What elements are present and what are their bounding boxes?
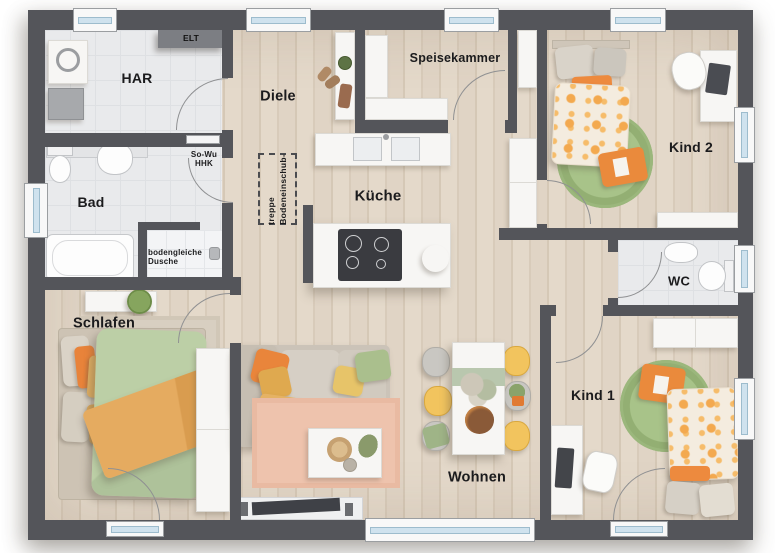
attic-ladder-box: Bodeneinschub- treppe [258,153,297,225]
floor-plan: HAR Diele Speisekammer Kind 2 Bad Küche … [0,0,775,553]
wall-diele-kueche [355,30,365,133]
hall-wardrobe [509,138,537,228]
window-kind2-top [610,8,666,32]
terrace-door-schlafen [106,521,164,537]
sofa-pillow-green [354,349,392,383]
door-glass [615,526,663,533]
room-label-wohnen: Wohnen [448,470,506,487]
wall-schlafen-wohnen-2 [230,343,241,520]
room-label-diele: Diele [260,89,296,106]
wall-kind2-bottom [499,228,738,240]
window-bad [24,183,48,238]
wall-pantry-bottom-2 [505,120,517,133]
wall-wc-left-1 [608,240,618,252]
bed-kind2-pillow-2 [593,47,627,77]
window-kind1-right [734,378,755,440]
window-har [73,8,117,32]
window-glass [449,17,494,24]
laptop-kind2 [705,63,731,96]
window-glass [33,188,40,233]
window-wc [734,245,755,293]
annotation-elt: ELT [183,34,199,44]
room-label-bad: Bad [77,194,104,210]
dining-chair-gray-1 [422,347,450,377]
bed-kind2-pillow-1 [554,44,595,80]
monitor-kind1 [555,447,575,488]
room-label-schlafen: Schlafen [73,316,135,333]
tv-speaker-right [345,503,353,516]
room-label-har: HAR [122,70,153,86]
wardrobe-schlafen [196,348,230,512]
annotation-sowu-hhk: So-Wu HHK [191,150,217,168]
bathtub-inner [52,240,128,276]
wall-shower-h [138,222,200,230]
door-glass [111,526,159,533]
kitchen-faucet-icon [383,134,389,140]
kitchen-sink-1 [353,137,382,161]
cooktop-burner-2 [346,256,359,269]
toilet-bad-bowl [49,155,71,183]
wardrobe-kind1-seam [695,318,696,348]
wall-kueche-west [303,205,313,283]
wall-hall-kind2-1 [537,30,547,180]
cooktop-burner-1 [345,235,362,252]
bed-kind1-pillow-orange [670,466,710,481]
window-glass [741,250,748,288]
wall-har-diele-2 [222,130,233,158]
fruit-bowl [422,245,449,272]
wardrobe-kind2 [657,212,738,228]
wall-har-diele-1 [222,30,233,78]
wall-shower-v [138,222,147,277]
window-wohnen [365,518,535,542]
pantry-shelf-left [365,35,388,98]
annotation-bodeneinschubtreppe: Bodeneinschub- treppe [266,154,290,225]
table-flowers [458,370,498,406]
window-glass [370,527,530,534]
bed-kind1-pillow-2 [698,482,735,517]
window-glass [78,17,112,24]
dining-chair-yellow-2 [424,386,452,416]
bed-kind1-pillow-1 [665,481,702,516]
window-glass [741,112,748,158]
console-plant [338,56,352,70]
room-label-kind1: Kind 1 [571,387,615,403]
window-speisekammer [444,8,499,32]
cushion-kind2-book [613,157,630,177]
wall-bad-schlafen [28,277,241,290]
wall-wohnen-kind1 [540,305,551,520]
wardrobe-schlafen-seam [196,429,230,430]
window-glass [741,383,748,435]
wall-bad-diele [222,203,233,277]
shower-head-icon [209,247,220,260]
cushion-kind1-book [653,375,669,395]
window-glass [251,17,306,24]
exterior-wall-left [28,10,45,540]
wall-pantry-right [508,30,517,120]
hall-wardrobe-seam [509,182,537,183]
sowu-hhk-element [186,135,220,144]
room-label-kind2: Kind 2 [669,139,713,155]
cooktop-burner-3 [374,237,389,252]
washing-machine-door-icon [56,48,80,72]
kitchen-sink-2 [391,137,420,161]
chair-plant-pot [512,396,524,406]
dining-chair-yellow-1 [503,346,530,376]
table-bowl [465,406,494,434]
wall-pantry-bottom-1 [355,120,448,133]
annotation-dusche: bodengleiche Dusche [148,248,202,266]
dining-chair-yellow-3 [503,421,530,451]
coffee-table-vase [343,458,357,472]
room-label-kueche: Küche [355,187,402,204]
plant-sideboard [127,289,152,314]
window-diele [246,8,311,32]
wc-sink [664,242,698,263]
window-kind2-right [734,107,755,163]
cooktop-burner-4 [376,259,386,269]
room-label-speisekammer: Speisekammer [410,51,501,65]
window-glass [615,17,661,24]
utility-box [48,88,84,120]
wall-schlafen-wohnen-1 [230,290,241,295]
hall-closet-top [518,30,537,88]
room-label-wc: WC [668,275,690,290]
tv-speaker-left [240,502,248,516]
wc-toilet-bowl [698,261,726,291]
wall-wc-bottom-2 [603,305,738,316]
wall-wc-left-2 [608,298,618,305]
terrace-door-kind1 [610,521,668,537]
pantry-shelf-bottom [365,98,448,120]
